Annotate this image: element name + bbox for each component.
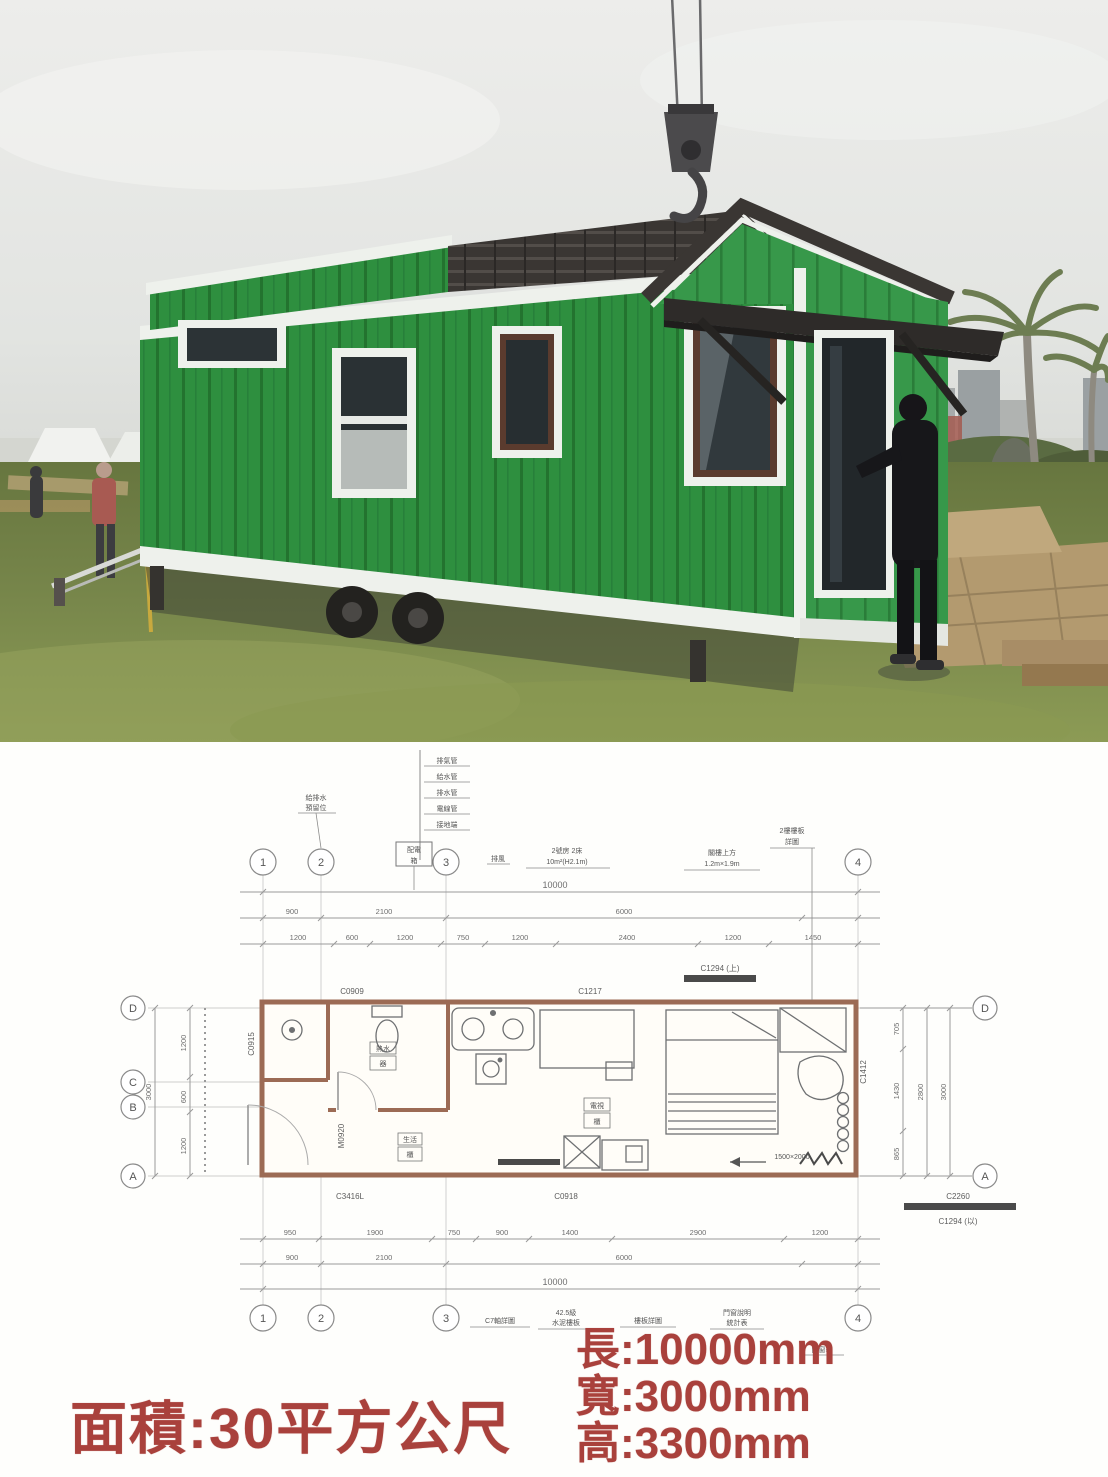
- bath-box-label: 器: [380, 1060, 387, 1068]
- tag-c0918: C0918: [554, 1192, 578, 1201]
- grid-col-1: 1: [260, 857, 266, 869]
- dim-bottom-detail: 1400: [562, 1228, 579, 1237]
- dim-left-detail: 1200: [179, 1138, 188, 1155]
- grid-row-d: D: [129, 1003, 137, 1015]
- dim-top-detail: 600: [346, 933, 359, 942]
- callout-right2: 2樓樓板: [780, 826, 805, 835]
- callout-above2: 預留位: [306, 803, 327, 812]
- lumber: [1002, 640, 1108, 666]
- page: 10000 900 2100 6000 1200 600 1200 750 12…: [0, 0, 1108, 1477]
- dim-top-detail: 1200: [397, 933, 414, 942]
- tag-c0909: C0909: [340, 987, 364, 996]
- hall-box-label: 生活: [403, 1135, 417, 1144]
- callout-flagbox: 配電: [407, 846, 421, 854]
- tag-c1294-bottom: C1294 (以): [938, 1217, 977, 1226]
- dim-bottom-detail: 2900: [690, 1228, 707, 1237]
- grid-col-2: 2: [318, 857, 324, 869]
- dim-bottom-detail: 900: [496, 1228, 509, 1237]
- callout-stack-item: 排氣管: [437, 756, 458, 765]
- dim-bottom-mid: 6000: [616, 1253, 633, 1262]
- height-label: 高:3300mm: [576, 1420, 835, 1467]
- grid-col-3-bottom: 3: [443, 1313, 449, 1325]
- dim-right-detail: 865: [892, 1148, 901, 1161]
- tag-c2260: C2260: [946, 1192, 970, 1201]
- tag-bed-note: 1500×2000: [774, 1154, 809, 1161]
- bath-box-label: 熱水: [376, 1044, 390, 1053]
- callout-small: 排風: [491, 854, 505, 863]
- grid-col-4-bottom: 4: [855, 1313, 861, 1325]
- dim-right-detail: 705: [892, 1023, 901, 1036]
- callout-bottom2: 42.5級: [556, 1308, 577, 1317]
- callout-bottom3: 樓板詳圖: [634, 1316, 662, 1325]
- callout-stack-item: 電線管: [437, 804, 458, 813]
- dim-top-mid: 2100: [376, 907, 393, 916]
- callout-mid: 10m²(H2.1m): [546, 859, 587, 866]
- dim-bottom-mid: 900: [286, 1253, 299, 1262]
- photo-illustration: [0, 0, 1108, 742]
- dim-top-mid: 900: [286, 907, 299, 916]
- dim-top-detail: 1450: [805, 933, 822, 942]
- callout-bottom1: C7軸詳圖: [485, 1316, 515, 1325]
- tag-m0920: M0920: [337, 1123, 346, 1148]
- callout-mid: 2號房 2床: [552, 846, 583, 855]
- lumber: [1022, 664, 1108, 686]
- dim-bottom-detail: 1900: [367, 1228, 384, 1237]
- window-mid-right: [492, 326, 562, 458]
- dim-top-detail: 1200: [512, 933, 529, 942]
- callout-stack-item: 接地端: [437, 820, 458, 829]
- dim-bottom-overall: 10000: [542, 1277, 567, 1287]
- dim-left-overall: 3000: [144, 1084, 153, 1101]
- dim-top-detail: 2400: [619, 933, 636, 942]
- dim-top-overall: 10000: [542, 880, 567, 890]
- grid-col-4: 4: [855, 857, 861, 869]
- cloud: [0, 50, 500, 190]
- callout-right2: 詳圖: [785, 837, 799, 846]
- width-label: 寬:3000mm: [576, 1373, 835, 1420]
- threshold-strip: [498, 1159, 560, 1165]
- window-bar: [684, 975, 756, 982]
- callout-above2: 給排水: [306, 793, 327, 802]
- tag-c1217: C1217: [578, 987, 602, 996]
- plank: [0, 500, 90, 512]
- dim-top-mid: 6000: [616, 907, 633, 916]
- living-box-label: 櫃: [594, 1117, 601, 1126]
- dim-left-detail: 1200: [179, 1035, 188, 1052]
- clerestory-window: [178, 320, 286, 368]
- hero-photo: [0, 0, 1108, 742]
- grid-row-d-right: D: [981, 1003, 989, 1015]
- dim-top-detail: 1200: [290, 933, 307, 942]
- callout-right1: 1.2m×1.9m: [704, 861, 739, 868]
- window-tag-c1294-top: C1294 (上): [700, 964, 739, 973]
- dimensions-block: 長:10000mm 寬:3000mm 高:3300mm: [576, 1326, 835, 1467]
- dim-top-detail: 750: [457, 933, 470, 942]
- floor-plan: 10000 900 2100 6000 1200 600 1200 750 12…: [0, 742, 1108, 1477]
- living-box-label: 電視: [590, 1101, 604, 1110]
- callout-stack-item: 給水管: [437, 772, 458, 781]
- callout-right1: 閣樓上方: [708, 848, 736, 857]
- tongue-jack: [54, 578, 65, 606]
- grid-row-a-right: A: [981, 1171, 989, 1183]
- dim-left-detail: 600: [179, 1091, 188, 1104]
- tag-c1412: C1412: [859, 1060, 868, 1084]
- grid-row-b: B: [129, 1102, 136, 1114]
- grid-col-3: 3: [443, 857, 449, 869]
- distant-figure-dark: [30, 466, 43, 518]
- callout-flagbox: 箱: [411, 856, 418, 865]
- floor-plan-svg: 10000 900 2100 6000 1200 600 1200 750 12…: [0, 742, 1108, 1477]
- window-bar-bottom: [904, 1203, 1016, 1210]
- grid-row-a: A: [129, 1171, 137, 1183]
- dim-top-detail: 1200: [725, 933, 742, 942]
- tag-c3416l: C3416L: [336, 1192, 365, 1201]
- dim-bottom-mid: 2100: [376, 1253, 393, 1262]
- dim-bottom-detail: 1200: [812, 1228, 829, 1237]
- dim-right-mid: 2800: [916, 1084, 925, 1101]
- callout-stack-item: 排水管: [437, 788, 458, 797]
- callout-bottom4: 門窗說明: [723, 1308, 751, 1317]
- dim-bottom-detail: 750: [448, 1228, 461, 1237]
- grid-col-1-bottom: 1: [260, 1313, 266, 1325]
- dim-bottom-detail: 950: [284, 1228, 297, 1237]
- dim-right-overall: 3000: [939, 1084, 948, 1101]
- grid-col-2-bottom: 2: [318, 1313, 324, 1325]
- grid-row-c: C: [129, 1077, 137, 1089]
- tag-c0915: C0915: [247, 1032, 256, 1056]
- length-label: 長:10000mm: [576, 1326, 835, 1373]
- area-label: 面積:30平方公尺: [70, 1383, 512, 1465]
- dim-right-detail: 1430: [892, 1083, 901, 1100]
- window-mid-left: [332, 348, 416, 498]
- hall-box-label: 櫃: [407, 1150, 414, 1159]
